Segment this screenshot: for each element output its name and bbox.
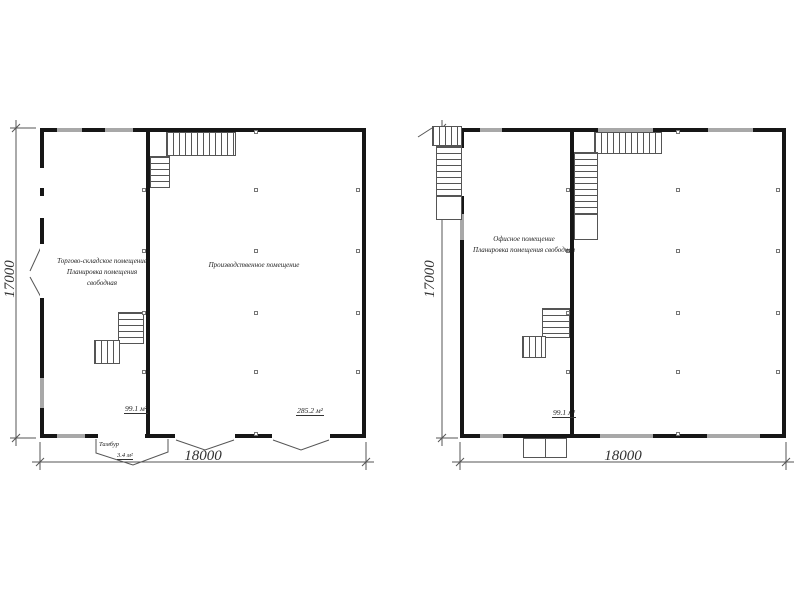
- window-segment: [105, 128, 133, 132]
- gate-opening: [272, 434, 330, 438]
- room-note: Планировка помещения свободная: [468, 245, 580, 256]
- room-name: Производственное помещение: [184, 260, 324, 271]
- column-marker: [566, 370, 570, 374]
- column-marker: [776, 249, 780, 253]
- room-note: Планировка помещения свободная: [52, 267, 152, 289]
- stair-run: [118, 312, 144, 344]
- vestibule-area: 3.4 м²: [117, 452, 147, 459]
- window-segment: [600, 434, 653, 438]
- area-label: 285.2 м²: [286, 406, 334, 415]
- column-marker: [254, 311, 258, 315]
- floor-plan-drawing: Торгово-складское помещение Планировка п…: [0, 0, 800, 600]
- column-marker: [676, 370, 680, 374]
- area-label: 99.1 м²: [114, 404, 158, 413]
- floor-plan-left: Торгово-складское помещение Планировка п…: [40, 128, 366, 438]
- column-marker: [676, 432, 680, 436]
- stair-run: [150, 156, 170, 188]
- column-marker: [676, 249, 680, 253]
- column-marker: [254, 370, 258, 374]
- entrance-porch: [523, 438, 567, 458]
- exterior-stair-landing: [436, 196, 462, 220]
- stair-winder: [522, 336, 546, 358]
- column-marker: [356, 188, 360, 192]
- window-segment: [708, 128, 753, 132]
- column-marker: [356, 249, 360, 253]
- window-segment: [480, 128, 502, 132]
- column-marker: [776, 188, 780, 192]
- exterior-stair-run: [436, 146, 462, 196]
- column-marker: [676, 311, 680, 315]
- column-marker: [356, 370, 360, 374]
- stair-run: [166, 132, 236, 156]
- column-marker: [142, 188, 146, 192]
- column-marker: [676, 188, 680, 192]
- column-marker: [254, 130, 258, 134]
- column-marker: [142, 311, 146, 315]
- column-marker: [776, 370, 780, 374]
- vestibule-opening: [98, 434, 145, 438]
- room-label: Торгово-складское помещение Планировка п…: [52, 256, 152, 289]
- window-segment: [707, 434, 760, 438]
- room-name: Офисное помещение: [468, 234, 580, 245]
- column-marker: [566, 188, 570, 192]
- window-segment: [480, 434, 503, 438]
- room-label: Офисное помещение Планировка помещения с…: [468, 234, 580, 256]
- column-marker: [254, 188, 258, 192]
- window-segment: [57, 434, 85, 438]
- column-marker: [254, 432, 258, 436]
- dimension-height-b: 17000: [422, 247, 438, 311]
- door-opening: [40, 168, 44, 188]
- floor-plan-right: Офисное помещение Планировка помещения с…: [460, 128, 786, 438]
- stair-run: [94, 340, 120, 364]
- column-marker: [566, 311, 570, 315]
- window-segment: [57, 128, 82, 132]
- double-door-opening: [40, 244, 44, 298]
- door-opening: [40, 196, 44, 218]
- column-marker: [776, 311, 780, 315]
- area-label: 99.1 м²: [542, 408, 586, 417]
- column-marker: [676, 130, 680, 134]
- window-segment: [40, 378, 44, 408]
- exterior-stair-run: [432, 126, 462, 146]
- stair-run: [594, 132, 662, 154]
- porch-step-divider: [545, 439, 546, 457]
- column-marker: [142, 370, 146, 374]
- stair-run: [574, 152, 598, 214]
- column-marker: [142, 249, 146, 253]
- column-marker: [356, 311, 360, 315]
- gate-opening: [175, 434, 235, 438]
- vestibule-label: Тамбур: [99, 441, 135, 448]
- room-label: Производственное помещение: [184, 260, 324, 271]
- dimension-height-a: 17000: [2, 247, 18, 311]
- column-marker: [254, 249, 258, 253]
- room-name: Торгово-складское помещение: [52, 256, 152, 267]
- dimension-width-a: 18000: [163, 448, 243, 464]
- dimension-width-b: 18000: [583, 448, 663, 464]
